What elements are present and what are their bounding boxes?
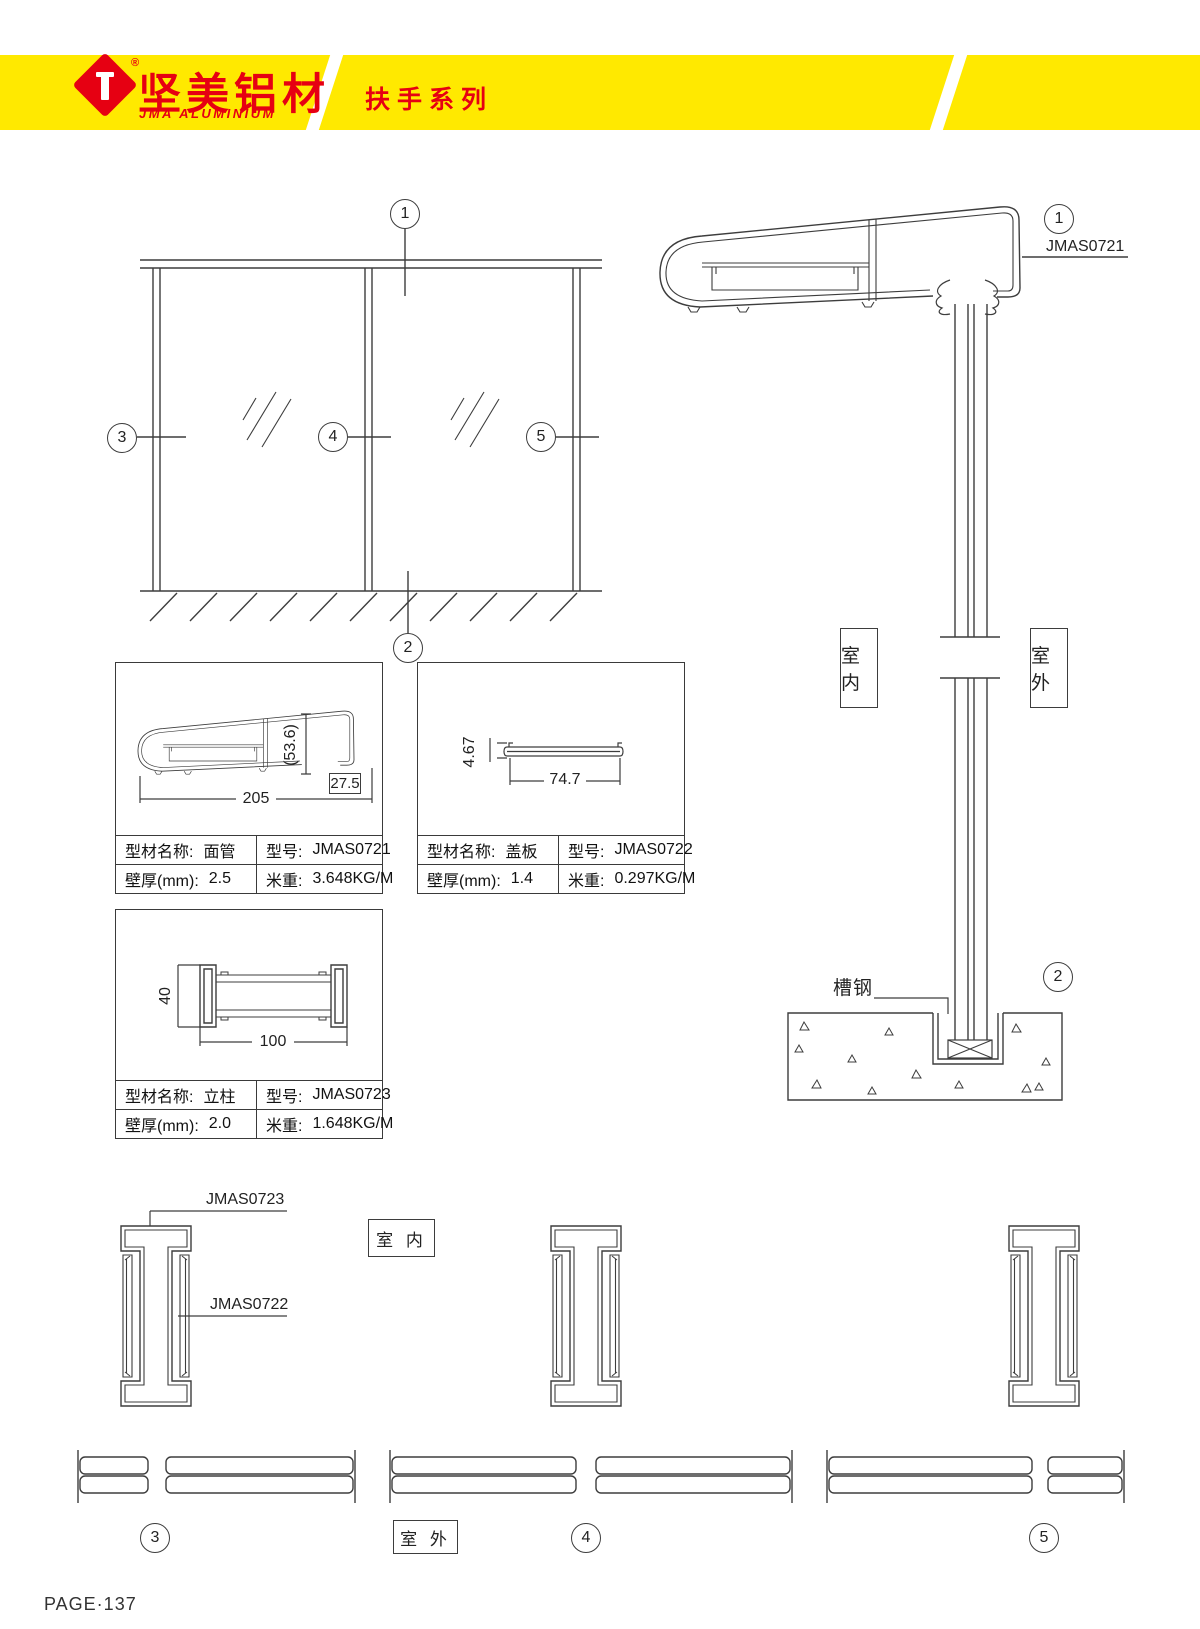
profile-spec-table: 型材名称: 盖板 型号: JMAS0722 壁厚(mm): 1.4 米重: 0.… [418,835,684,893]
thickness-label: 壁厚(mm): [427,867,501,891]
thickness-label: 壁厚(mm): [125,867,199,891]
profile-model-cell: 型号: JMAS0721 [256,836,391,864]
profile-name-label: 型材名称: [427,838,495,862]
table-row: 壁厚(mm): 2.5 米重: 3.648KG/M [116,864,382,893]
section-profile-model-label: JMAS0721 [1046,238,1124,256]
plan-outdoor-label-box: 室 外 [393,1520,458,1554]
elevation-callout-2: 2 [393,633,423,663]
profile-card-post: 型材名称: 立柱 型号: JMAS0723 壁厚(mm): 2.0 米重: 1.… [115,909,383,1139]
table-row: 壁厚(mm): 1.4 米重: 0.297KG/M [418,864,684,893]
profile-name-value: 面管 [203,838,235,862]
thickness-label: 壁厚(mm): [125,1112,199,1136]
indoor-label-box: 室内 [840,628,878,708]
profile-model-value: JMAS0721 [312,841,390,859]
weight-value: 1.648KG/M [312,1115,393,1133]
thickness-value: 1.4 [511,870,533,888]
profile-name-cell: 型材名称: 盖板 [418,836,558,864]
registered-trademark-mark: ® [131,57,139,69]
profile-thickness-cell: 壁厚(mm): 1.4 [418,865,558,893]
weight-value: 0.297KG/M [614,870,695,888]
elevation-callout-5: 5 [526,422,556,452]
profile-name-label: 型材名称: [125,1083,193,1107]
thickness-value: 2.0 [209,1115,231,1133]
dim-label-74-7: 74.7 [544,771,586,788]
profile-model-label: 型号: [266,838,302,862]
page-title-series: 扶手系列 [365,80,493,116]
channel-steel-label: 槽钢 [833,973,873,1000]
plan-callout-4: 4 [571,1523,601,1553]
page-number: PAGE·137 [44,1594,137,1615]
table-row: 型材名称: 盖板 型号: JMAS0722 [418,835,684,864]
elevation-callout-1: 1 [390,199,420,229]
plan-callout-3: 3 [140,1523,170,1553]
profile-spec-table: 型材名称: 立柱 型号: JMAS0723 壁厚(mm): 2.0 米重: 1.… [116,1080,382,1138]
dim-label-205: 205 [236,790,276,807]
profile-name-label: 型材名称: [125,838,193,862]
profile-thickness-cell: 壁厚(mm): 2.0 [116,1110,256,1138]
weight-label: 米重: [266,867,302,891]
elevation-callout-3: 3 [107,423,137,453]
profile-spec-table: 型材名称: 面管 型号: JMAS0721 壁厚(mm): 2.5 米重: 3.… [116,835,382,893]
profile-model-label: 型号: [568,838,604,862]
profile-model-cell: 型号: JMAS0723 [256,1081,391,1109]
profile-model-value: JMAS0723 [312,1086,390,1104]
table-row: 型材名称: 面管 型号: JMAS0721 [116,835,382,864]
plan-cover-model-label: JMAS0722 [210,1296,288,1314]
dim-label-40: 40 [157,976,177,1016]
profile-weight-cell: 米重: 0.297KG/M [558,865,695,893]
dim-label-27-5: 27.5 [329,773,361,794]
profile-name-cell: 型材名称: 面管 [116,836,256,864]
weight-label: 米重: [266,1112,302,1136]
dim-label-4-67: 4.67 [461,727,481,777]
profile-name-value: 盖板 [505,838,537,862]
section-callout-2: 2 [1043,962,1073,992]
profile-model-cell: 型号: JMAS0722 [558,836,693,864]
weight-value: 3.648KG/M [312,870,393,888]
dim-label-53-6: (53.6) [282,719,302,771]
profile-name-value: 立柱 [203,1083,235,1107]
catalog-page: ® 坚美铝材 JMA ALUMINIUM 扶手系列 型材名称: 面管 型号: J… [0,0,1200,1629]
thickness-value: 2.5 [209,870,231,888]
table-row: 型材名称: 立柱 型号: JMAS0723 [116,1080,382,1109]
section-callout-1: 1 [1044,204,1074,234]
elevation-callout-4: 4 [318,422,348,452]
profile-weight-cell: 米重: 1.648KG/M [256,1110,393,1138]
brand-name-english: JMA ALUMINIUM [139,106,276,121]
profile-model-label: 型号: [266,1083,302,1107]
jma-logo-glyph [101,74,109,100]
profile-thickness-cell: 壁厚(mm): 2.5 [116,865,256,893]
plan-post-model-label: JMAS0723 [206,1191,284,1209]
dim-label-100: 100 [252,1033,294,1050]
profile-name-cell: 型材名称: 立柱 [116,1081,256,1109]
plan-indoor-label-box: 室 内 [368,1219,435,1257]
outdoor-label-box: 室外 [1030,628,1068,708]
profile-model-value: JMAS0722 [614,841,692,859]
plan-callout-5: 5 [1029,1523,1059,1553]
table-row: 壁厚(mm): 2.0 米重: 1.648KG/M [116,1109,382,1138]
profile-weight-cell: 米重: 3.648KG/M [256,865,393,893]
weight-label: 米重: [568,867,604,891]
